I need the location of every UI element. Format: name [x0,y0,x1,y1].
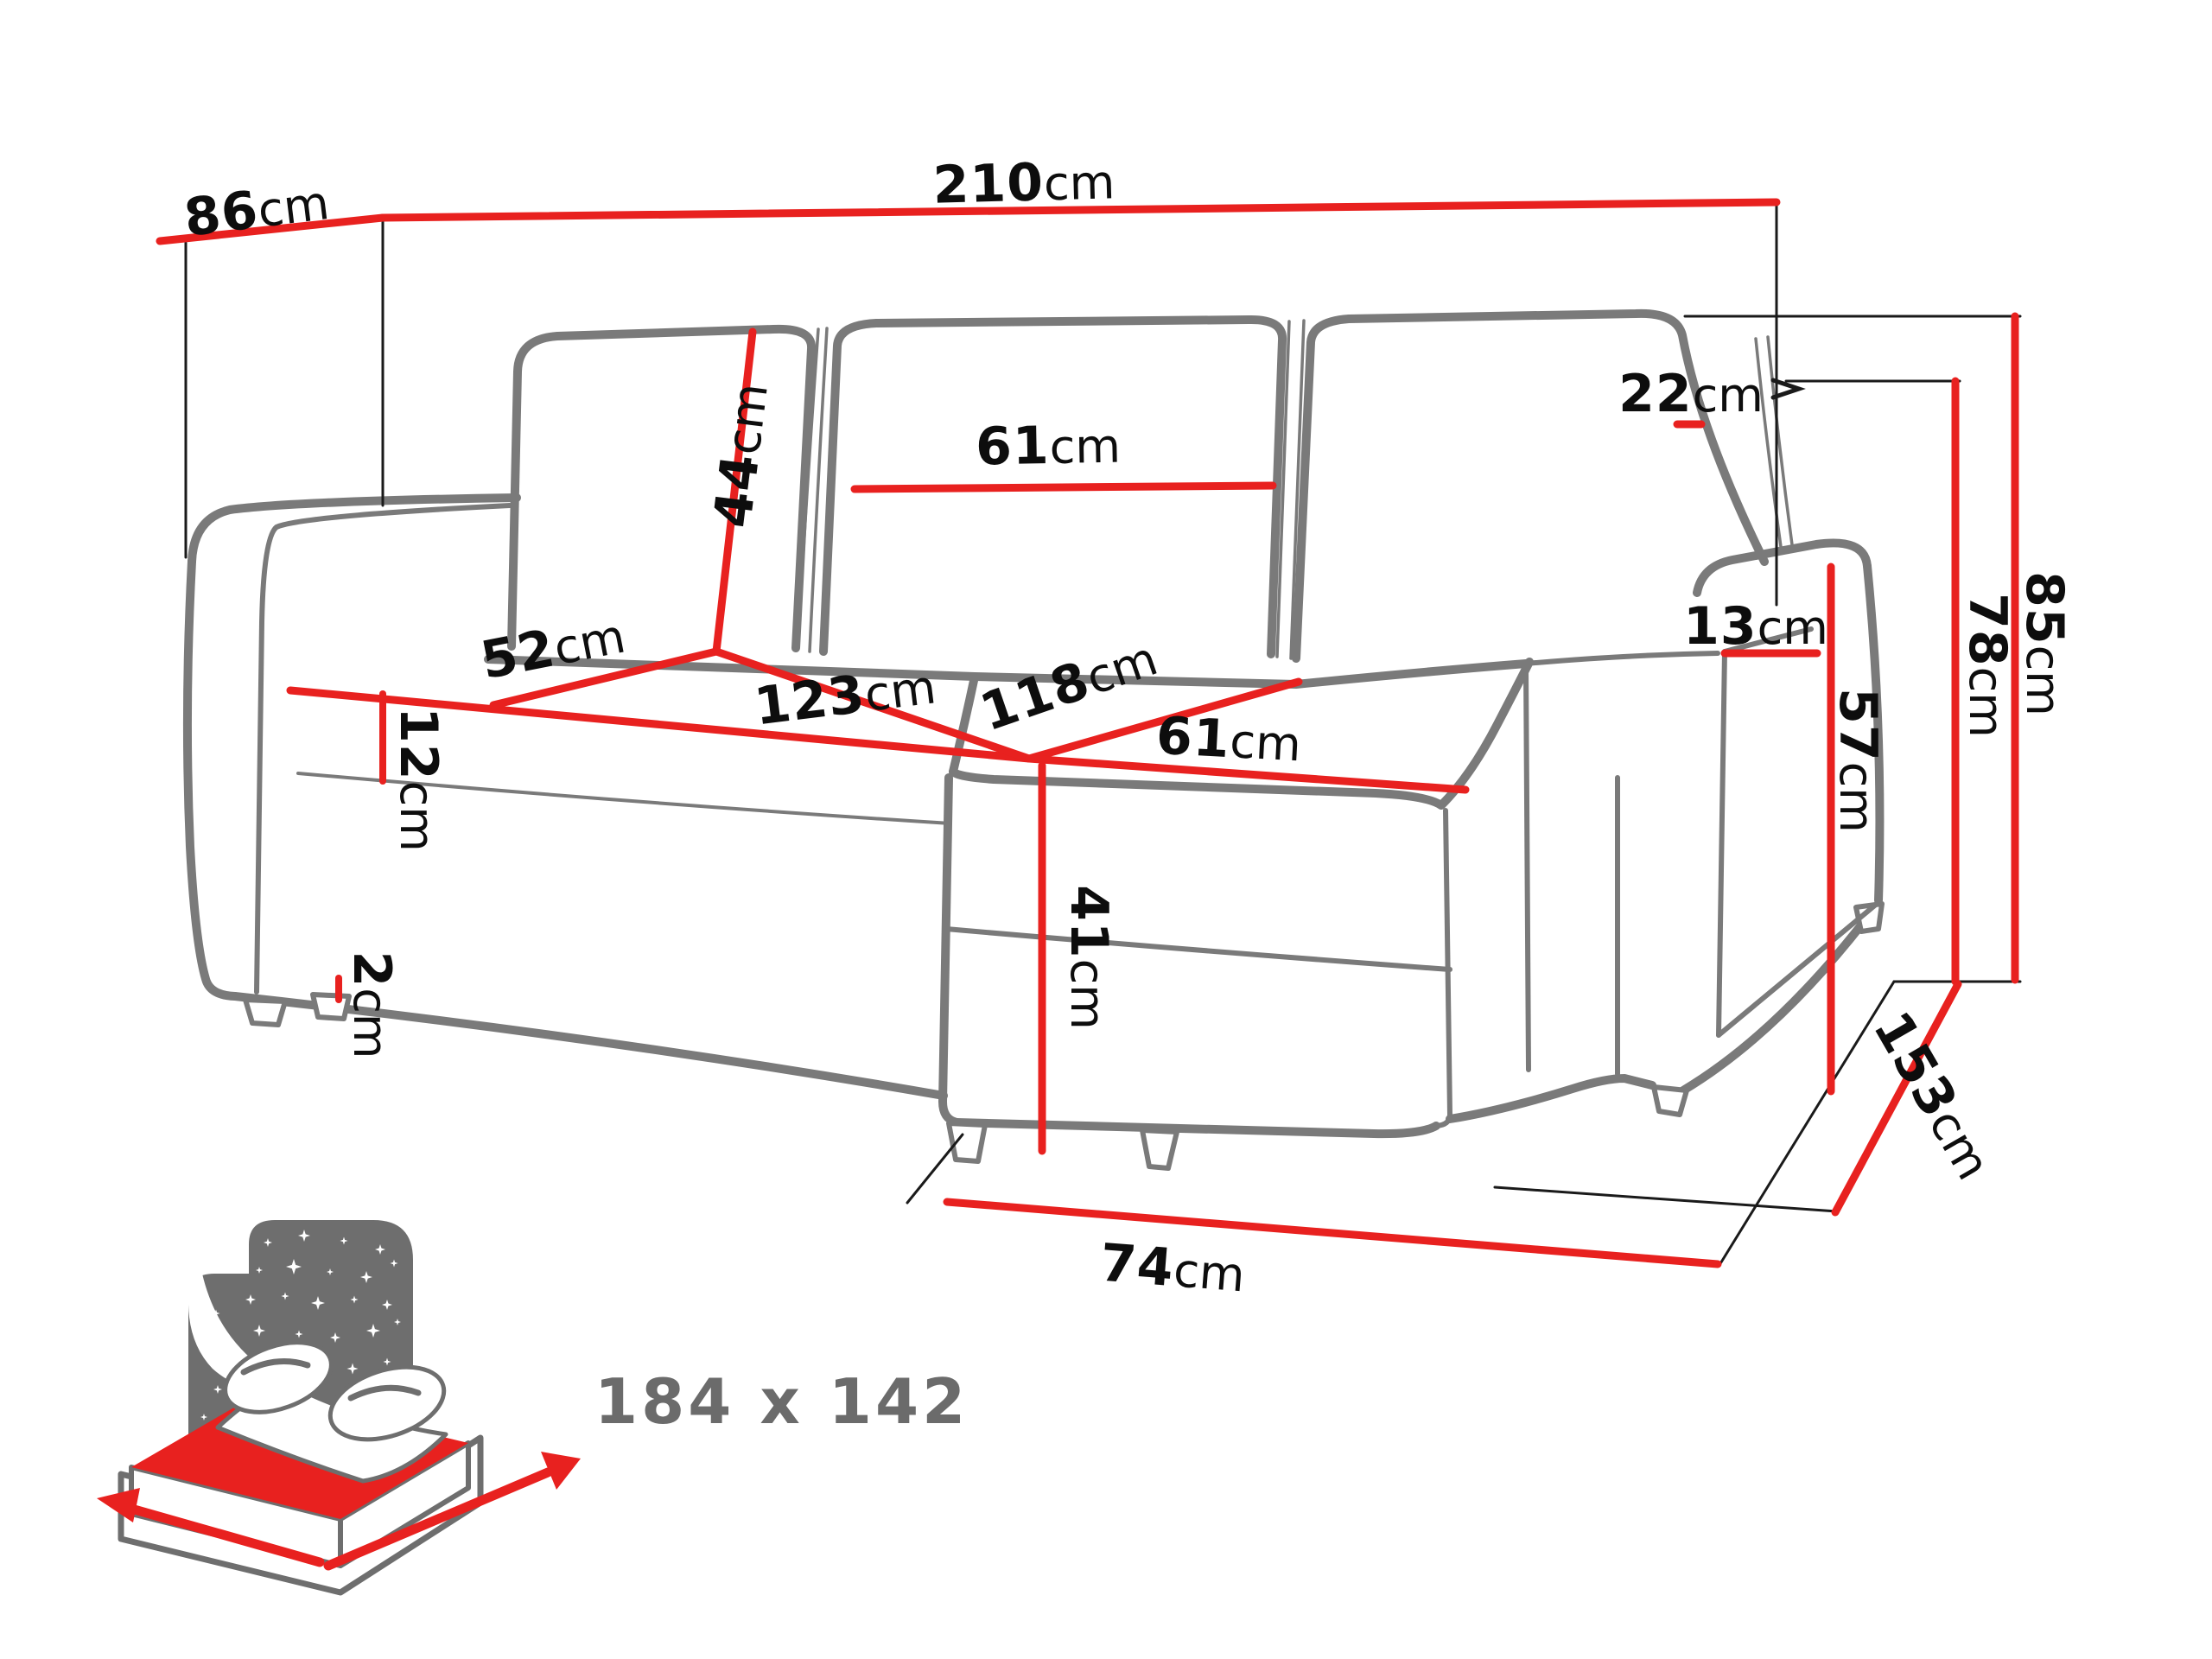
dim-label-12: 12cm [392,707,444,852]
dim-label-61-seat: 61cm [1155,710,1303,770]
base-bottom-right-curve [1450,1078,1652,1119]
dim-label-13: 13cm [1683,601,1828,652]
dim-label-78: 78cm [1961,593,2013,738]
sofa-leg [1142,1130,1177,1168]
dim-label-61-back: 61cm [976,419,1122,474]
dim-label-22: 22cm [1618,368,1764,420]
back-wing-line [1768,337,1793,551]
chaise-top-right-edge [1441,662,1529,805]
right-armrest-front-bottom-edge [1719,904,1877,1035]
dim-line-61-back [855,486,1273,489]
dim-line-74 [947,1202,1718,1264]
base-bottom-under-armrest [1683,907,1875,1090]
floor-line [1495,1187,1837,1211]
chaise-rear-vertical [1526,667,1529,1070]
sofa-leg [1654,1087,1687,1115]
left-armrest-outer-edge [188,562,235,996]
sofa-leg [245,1000,285,1025]
bed-icon [97,1220,581,1592]
chaise-top-front-edge [953,772,1441,805]
floor-line [907,1135,963,1203]
dim-label-210: 210cm [932,155,1116,211]
chaise-front-bottom-edge [957,1122,1436,1134]
right-armrest-top-edge [1697,543,1867,593]
dim-label-85: 85cm [2018,571,2070,716]
sofa-leg [949,1123,985,1161]
chaise-storage-seam [946,929,1450,969]
diagram-stage: 86cm 210cm 22cm 44cm 61cm 52cm 123cm 118… [0,0,2212,1659]
chaise-left-edge [953,677,975,772]
dim-label-57: 57cm [1832,688,1884,833]
bed-size-label: 184 x 142 [594,1365,969,1438]
dim-label-74: 74cm [1098,1237,1247,1300]
dim-label-41: 41cm [1063,885,1115,1030]
floor-line [1719,982,1894,1265]
chaise-front-left-edge [943,778,957,1122]
dim-label-2: 2cm [346,950,397,1058]
right-armrest-front-left-edge [1719,652,1725,1035]
